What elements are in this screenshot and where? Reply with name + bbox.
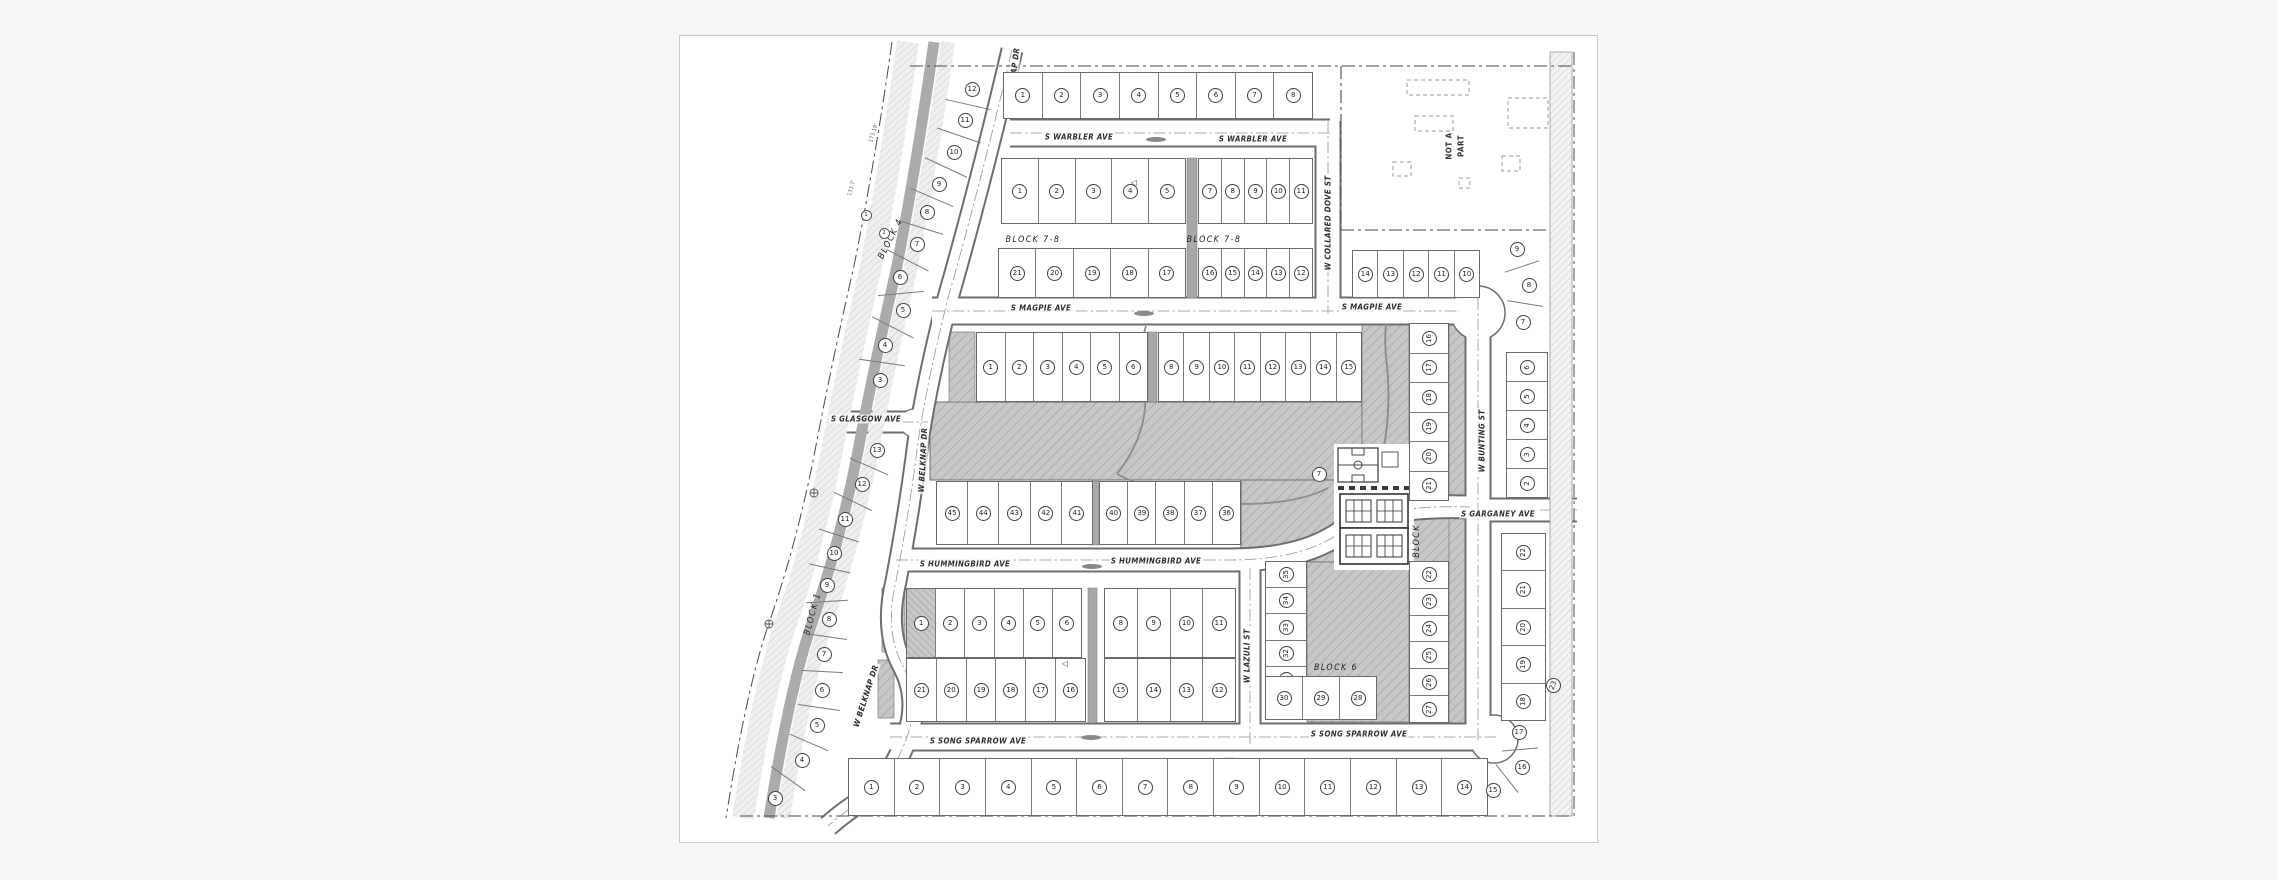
lot-parcel: 2 <box>895 759 941 815</box>
lot-number: 28 <box>1351 691 1366 706</box>
lot-parcel: 8 <box>1274 73 1312 118</box>
lot-parcel: 44 <box>968 482 999 544</box>
lot-number: 5 <box>1520 389 1535 404</box>
lot-number: 20 <box>1047 266 1062 281</box>
lot-line <box>1502 747 1538 751</box>
lot-parcel: 1 <box>1002 159 1039 223</box>
lot-parcel: 4 <box>1120 73 1159 118</box>
lot-number: 4 <box>795 753 810 768</box>
lot-parcel: 13 <box>1378 251 1403 297</box>
lot-number: 14 <box>1358 267 1373 282</box>
lot-number: 18 <box>1122 266 1137 281</box>
lot-number: 2 <box>879 228 890 239</box>
lot-line <box>937 128 981 144</box>
lot-number: 6 <box>1520 360 1535 375</box>
lot-number: 2 <box>1012 360 1027 375</box>
lot-line <box>1505 260 1539 272</box>
lot-parcel: 18 <box>1502 684 1545 720</box>
lot-row-block-7-8: 7891011 <box>1198 158 1313 224</box>
lot-row-block-6: 4544434241 <box>936 481 1093 545</box>
lot-number: 1 <box>861 210 872 221</box>
lot-parcel: 19 <box>1502 646 1545 683</box>
lot-parcel: 16 <box>1056 659 1085 721</box>
lot-number: 15 <box>1225 266 1240 281</box>
lot-number: 15 <box>1113 683 1128 698</box>
lot-number: 23 <box>1543 675 1562 694</box>
lot-parcel: 2 <box>1043 73 1082 118</box>
street-label-ga: S GARGANEY AVE <box>1459 510 1536 519</box>
lot-parcel: 15 <box>1105 659 1138 721</box>
lot-row-block-6: 3534333231 <box>1265 561 1307 693</box>
lot-parcel: 17 <box>1026 659 1056 721</box>
lot-number: 13 <box>870 443 885 458</box>
lot-parcel: 37 <box>1185 482 1213 544</box>
lot-parcel: 11 <box>1290 159 1312 223</box>
street-label-wa1: S WARBLER AVE <box>1043 133 1115 142</box>
lot-number: 44 <box>976 506 991 521</box>
lot-number: 10 <box>1214 360 1229 375</box>
street-median-island <box>1134 311 1154 316</box>
lot-number: 19 <box>974 683 989 698</box>
block-label-b4: BLOCK 4 <box>877 217 906 261</box>
lot-number: 11 <box>1320 780 1335 795</box>
lot-parcel: 41 <box>1062 482 1092 544</box>
lot-row-block-6: 302928 <box>1265 676 1377 720</box>
lot-number: 12 <box>1212 683 1227 698</box>
lot-number: 6 <box>1208 88 1223 103</box>
lot-row-block-9: 12345678 <box>1003 72 1313 119</box>
lot-number: 14 <box>1248 266 1263 281</box>
lot-row-block-6: 161718192021 <box>1409 323 1449 501</box>
lot-parcel: 10 <box>1171 589 1204 657</box>
lot-parcel: 39 <box>1128 482 1156 544</box>
lot-number: 3 <box>1093 88 1108 103</box>
lot-parcel: 14 <box>1353 251 1378 297</box>
lot-number: 3 <box>768 791 783 806</box>
lot-parcel: 18 <box>996 659 1026 721</box>
lot-number: 17 <box>1512 725 1527 740</box>
lot-number: 42 <box>1038 506 1053 521</box>
lot-parcel: 20 <box>937 659 967 721</box>
lot-parcel: 14 <box>1245 249 1268 297</box>
lot-number: 21 <box>1516 582 1531 597</box>
lot-number: 15 <box>1341 360 1356 375</box>
lot-number: 13 <box>1291 360 1306 375</box>
lot-number: 8 <box>1286 88 1301 103</box>
lot-number: 18 <box>1516 694 1531 709</box>
lot-number: 39 <box>1134 506 1149 521</box>
lot-number: 21 <box>914 683 929 698</box>
street-label-hu2: S HUMMINGBIRD AVE <box>1109 557 1203 566</box>
lot-parcel: 4 <box>995 589 1024 657</box>
lot-row-block-7-8: 12345 <box>1001 158 1186 224</box>
lot-line <box>789 733 828 750</box>
lot-line <box>1507 300 1543 307</box>
lot-number: 13 <box>1383 267 1398 282</box>
block-label-b78e: BLOCK 7-8 <box>1187 235 1242 245</box>
lot-number: 9 <box>932 177 947 192</box>
lot-number: 6 <box>893 270 908 285</box>
lot-parcel: 15 <box>1337 333 1361 401</box>
lot-row-block-7-8: 2120191817 <box>998 248 1186 298</box>
lot-number: 11 <box>1240 360 1255 375</box>
lot-parcel: 4 <box>1112 159 1149 223</box>
lot-number: 2 <box>943 616 958 631</box>
lot-parcel: 12 <box>1351 759 1397 815</box>
lot-number: 33 <box>1279 620 1294 635</box>
lot-parcel: 13 <box>1397 759 1443 815</box>
lot-number: 6 <box>1092 780 1107 795</box>
lot-number: 7 <box>817 647 832 662</box>
lot-parcel: 22 <box>1502 534 1545 571</box>
lot-number: 11 <box>1212 616 1227 631</box>
lot-number: 12 <box>1366 780 1381 795</box>
street-label-bk2: W BELKNAP DR <box>917 426 930 495</box>
lot-line <box>899 220 943 235</box>
lot-number: 16 <box>1515 760 1530 775</box>
street-label-wa2: S WARBLER AVE <box>1217 135 1289 144</box>
lot-number: 17 <box>1159 266 1174 281</box>
lot-number: 7 <box>1202 184 1217 199</box>
block-label-b78w: BLOCK 7-8 <box>1006 235 1061 245</box>
lot-parcel: 11 <box>1429 251 1454 297</box>
lot-number: 45 <box>945 506 960 521</box>
lot-line <box>833 491 871 510</box>
lot-parcel: 5 <box>1091 333 1120 401</box>
lot-line <box>798 704 840 711</box>
lot-number: 18 <box>1003 683 1018 698</box>
block-label-b1: BLOCK 1 <box>802 591 823 636</box>
lot-number: 20 <box>1516 620 1531 635</box>
lot-parcel: 12 <box>1261 333 1286 401</box>
lot-number: 8 <box>1113 616 1128 631</box>
lot-number: 14 <box>1457 780 1472 795</box>
lot-parcel: 40 <box>1100 482 1128 544</box>
lot-number: 9 <box>1248 184 1263 199</box>
lot-number: 7 <box>1138 780 1153 795</box>
lot-line <box>809 564 850 574</box>
lot-number: 10 <box>1271 184 1286 199</box>
lot-line <box>872 316 913 338</box>
lot-number: 1 <box>983 360 998 375</box>
lot-number: 9 <box>1189 360 1204 375</box>
lot-parcel: 1 <box>849 759 895 815</box>
lot-number: 13 <box>1179 683 1194 698</box>
lot-row-block-4-5: 212019181716 <box>906 658 1086 722</box>
not-a-part-label-nap1: NOT A <box>1445 132 1454 159</box>
lot-number: 9 <box>1146 616 1161 631</box>
lot-parcel: 14 <box>1311 333 1336 401</box>
street-label-gl: S GLASGOW AVE <box>829 415 903 424</box>
lot-parcel: 14 <box>1442 759 1487 815</box>
lot-number: 2 <box>1054 88 1069 103</box>
lot-number: 14 <box>1316 360 1331 375</box>
lot-number: 27 <box>1422 702 1437 717</box>
lot-number: 7 <box>1312 467 1327 482</box>
lot-parcel: 28 <box>1340 677 1376 719</box>
street-median-island <box>1081 735 1101 740</box>
lot-parcel: 7 <box>1236 73 1275 118</box>
lot-parcel: 21 <box>907 659 937 721</box>
lot-number: 37 <box>1191 506 1206 521</box>
lot-parcel: 5 <box>1159 73 1198 118</box>
lot-line <box>849 458 888 476</box>
lot-parcel: 16 <box>1199 249 1222 297</box>
lot-number: 8 <box>1164 360 1179 375</box>
lot-number: 4 <box>1520 418 1535 433</box>
lot-parcel: 5 <box>1024 589 1053 657</box>
lot-row-block-3: 1234567891011121314 <box>848 758 1488 816</box>
lot-number: 12 <box>1409 267 1424 282</box>
lot-number: 9 <box>1229 780 1244 795</box>
lot-parcel: 7 <box>1123 759 1169 815</box>
lot-parcel: 11 <box>1235 333 1260 401</box>
lot-number: 4 <box>1069 360 1084 375</box>
lot-number: 10 <box>1179 616 1194 631</box>
lot-number: 43 <box>1007 506 1022 521</box>
lot-number: 10 <box>1275 780 1290 795</box>
lot-number: 10 <box>1459 267 1474 282</box>
lot-parcel: 10 <box>1260 759 1306 815</box>
lot-number: 25 <box>1422 648 1437 663</box>
lot-parcel: 22 <box>1410 562 1448 589</box>
lot-parcel: 23 <box>1410 589 1448 616</box>
lot-number: 1 <box>1012 184 1027 199</box>
survey-bearing-label-c1: 173.18' <box>868 123 879 143</box>
lot-parcel: 4 <box>986 759 1032 815</box>
not-a-part-label-nap2: PART <box>1457 135 1466 157</box>
lot-parcel: 6 <box>1077 759 1123 815</box>
lot-parcel: 3 <box>1076 159 1113 223</box>
lot-number: 24 <box>1422 621 1437 636</box>
lot-parcel: 2 <box>936 589 965 657</box>
lot-parcel: 12 <box>1290 249 1312 297</box>
lot-parcel: 20 <box>1502 609 1545 646</box>
lot-number: 20 <box>1422 449 1437 464</box>
lot-number: 9 <box>1510 242 1525 257</box>
lot-parcel: 14 <box>1138 659 1171 721</box>
street-median-island <box>1082 564 1102 569</box>
lot-number: 2 <box>1520 476 1535 491</box>
lot-parcel: 24 <box>1410 616 1448 643</box>
lot-parcel: 9 <box>1214 759 1260 815</box>
lot-parcel: 19 <box>1074 249 1111 297</box>
lot-number: 19 <box>1422 419 1437 434</box>
lot-parcel: 10 <box>1267 159 1290 223</box>
street-label-cd: W COLLARED DOVE ST <box>1324 174 1333 272</box>
lot-number: 6 <box>815 683 830 698</box>
block-label-bamv: BLOCK <box>1412 524 1422 558</box>
lot-parcel: 8 <box>1222 159 1245 223</box>
lot-number: 11 <box>838 512 853 527</box>
lot-parcel: 10 <box>1210 333 1235 401</box>
lot-parcel: 20 <box>1036 249 1073 297</box>
lot-line <box>887 249 928 271</box>
lot-number: 11 <box>1294 184 1309 199</box>
lot-number: 32 <box>1279 646 1294 661</box>
lot-row-block-6: 89101112131415 <box>1158 332 1362 402</box>
lot-parcel: 30 <box>1266 677 1303 719</box>
street-label-bk3: W BELKNAP DR <box>851 662 881 730</box>
street-median-island <box>1146 137 1166 142</box>
lot-parcel: 13 <box>1171 659 1204 721</box>
page-background: { "map": { "type": "subdivision-plat-dra… <box>0 0 2277 880</box>
lot-number: 5 <box>1046 780 1061 795</box>
lot-number: 5 <box>1097 360 1112 375</box>
lot-parcel: 35 <box>1266 562 1306 588</box>
lot-number: 19 <box>1085 266 1100 281</box>
lot-number: 8 <box>822 612 837 627</box>
lot-row-block-10: 1413121110 <box>1352 250 1480 298</box>
lot-parcel: 5 <box>1032 759 1078 815</box>
lot-number: 9 <box>820 578 835 593</box>
triangle-marker-icon: ◁ <box>1062 660 1068 668</box>
lot-parcel: 8 <box>1105 589 1138 657</box>
lot-number: 20 <box>944 683 959 698</box>
lot-number: 8 <box>1183 780 1198 795</box>
lot-parcel: 3 <box>1507 440 1547 469</box>
lot-number: 5 <box>1160 184 1175 199</box>
lot-number: 14 <box>1146 683 1161 698</box>
lot-row-block-6: 4039383736 <box>1099 481 1241 545</box>
lot-number: 5 <box>896 303 911 318</box>
lot-number: 2 <box>1049 184 1064 199</box>
lot-parcel: 13 <box>1267 249 1290 297</box>
lot-number: 22 <box>1422 567 1437 582</box>
lot-parcel: 36 <box>1213 482 1240 544</box>
lot-number: 19 <box>1516 657 1531 672</box>
lot-parcel: 12 <box>1203 659 1235 721</box>
lot-number: 13 <box>1271 266 1286 281</box>
lot-line <box>818 529 858 543</box>
lot-parcel: 16 <box>1410 324 1448 354</box>
lot-parcel: 3 <box>1034 333 1063 401</box>
lot-number: 21 <box>1422 478 1437 493</box>
lot-number: 22 <box>1516 545 1531 560</box>
lot-parcel: 21 <box>1502 571 1545 608</box>
lot-parcel: 7 <box>1199 159 1222 223</box>
lot-parcel: 8 <box>1168 759 1214 815</box>
street-label-ss2: S SONG SPARROW AVE <box>1309 730 1409 739</box>
lot-number: 34 <box>1279 593 1294 608</box>
lot-number: 1 <box>914 616 929 631</box>
lot-number: 8 <box>1225 184 1240 199</box>
lot-number: 38 <box>1163 506 1178 521</box>
lot-parcel: 26 <box>1410 669 1448 696</box>
lot-parcel: 4 <box>1063 333 1092 401</box>
lot-number: 17 <box>1422 360 1437 375</box>
lot-parcel: 1 <box>907 589 936 657</box>
street-label-hu1: S HUMMINGBIRD AVE <box>918 560 1012 569</box>
lot-number: 11 <box>1434 267 1449 282</box>
lot-parcel: 43 <box>999 482 1030 544</box>
lot-number: 4 <box>1131 88 1146 103</box>
lot-number: 7 <box>910 237 925 252</box>
lot-parcel: 6 <box>1120 333 1148 401</box>
lot-parcel: 45 <box>937 482 968 544</box>
lot-parcel: 29 <box>1303 677 1340 719</box>
lot-parcel: 2 <box>1039 159 1076 223</box>
lot-number: 3 <box>873 373 888 388</box>
block-label-b6am: BLOCK 6 <box>1314 663 1358 673</box>
lot-number: 30 <box>1277 691 1292 706</box>
lot-parcel: 33 <box>1266 614 1306 640</box>
lot-parcel: 6 <box>1507 353 1547 382</box>
lot-number: 12 <box>1265 360 1280 375</box>
lot-line <box>911 188 954 207</box>
lot-number: 6 <box>1126 360 1141 375</box>
lot-parcel: 17 <box>1410 354 1448 384</box>
lot-number: 17 <box>1033 683 1048 698</box>
lot-parcel: 27 <box>1410 696 1448 722</box>
lot-parcel: 3 <box>1081 73 1120 118</box>
lot-parcel: 42 <box>1031 482 1062 544</box>
street-label-ma1: S MAGPIE AVE <box>1009 304 1073 313</box>
lot-number: 4 <box>878 338 893 353</box>
lot-number: 3 <box>1040 360 1055 375</box>
lot-number: 23 <box>1422 594 1437 609</box>
lot-number: 5 <box>810 718 825 733</box>
street-label-ss1: S SONG SPARROW AVE <box>928 737 1028 746</box>
lot-parcel: 8 <box>1159 333 1184 401</box>
lot-parcel: 11 <box>1305 759 1351 815</box>
street-label-lz: W LAZULI ST <box>1243 627 1252 685</box>
lot-number: 36 <box>1219 506 1234 521</box>
lot-number: 4 <box>1001 616 1016 631</box>
lot-number: 4 <box>1001 780 1016 795</box>
lot-number: 26 <box>1422 675 1437 690</box>
triangle-marker-icon: ◁ <box>1131 179 1137 187</box>
plat-map-panel: S WARBLER AVES WARBLER AVES MAGPIE AVES … <box>679 35 1598 843</box>
lot-number: 2 <box>909 780 924 795</box>
lot-row-block-6: 222324252627 <box>1409 561 1449 723</box>
lot-parcel: 5 <box>1149 159 1185 223</box>
lot-row-block-7-8: 1615141312 <box>1198 248 1313 298</box>
lot-parcel: 2 <box>1006 333 1035 401</box>
lot-parcel: 6 <box>1197 73 1236 118</box>
lot-parcel: 17 <box>1149 249 1185 297</box>
lot-number: 3 <box>1086 184 1101 199</box>
lot-number: 15 <box>1486 783 1501 798</box>
lot-row-block-10: 65432 <box>1506 352 1548 498</box>
lot-number: 3 <box>972 616 987 631</box>
survey-bearing-label-c2: 133.7' <box>847 179 857 196</box>
lot-number: 7 <box>1516 315 1531 330</box>
lot-parcel: 12 <box>1404 251 1429 297</box>
lot-parcel: 21 <box>1410 472 1448 501</box>
lot-number: 12 <box>855 477 870 492</box>
lot-row-block-6: 123456 <box>976 332 1148 402</box>
lot-parcel: 13 <box>1286 333 1311 401</box>
lot-number: 18 <box>1422 390 1437 405</box>
lot-parcel: 38 <box>1156 482 1184 544</box>
plat-annotations: S WARBLER AVES WARBLER AVES MAGPIE AVES … <box>680 36 1599 844</box>
lot-number: 16 <box>1202 266 1217 281</box>
lot-number: 10 <box>827 546 842 561</box>
lot-parcel: 6 <box>1053 589 1081 657</box>
lot-parcel: 2 <box>1507 469 1547 497</box>
lot-parcel: 1 <box>1004 73 1043 118</box>
lot-line <box>924 157 966 177</box>
lot-parcel: 21 <box>999 249 1036 297</box>
lot-parcel: 1 <box>977 333 1006 401</box>
lot-parcel: 9 <box>1184 333 1209 401</box>
lot-number: 5 <box>1030 616 1045 631</box>
lot-parcel: 10 <box>1455 251 1479 297</box>
lot-number: 35 <box>1279 567 1294 582</box>
lot-number: 3 <box>955 780 970 795</box>
lot-parcel: 19 <box>967 659 997 721</box>
